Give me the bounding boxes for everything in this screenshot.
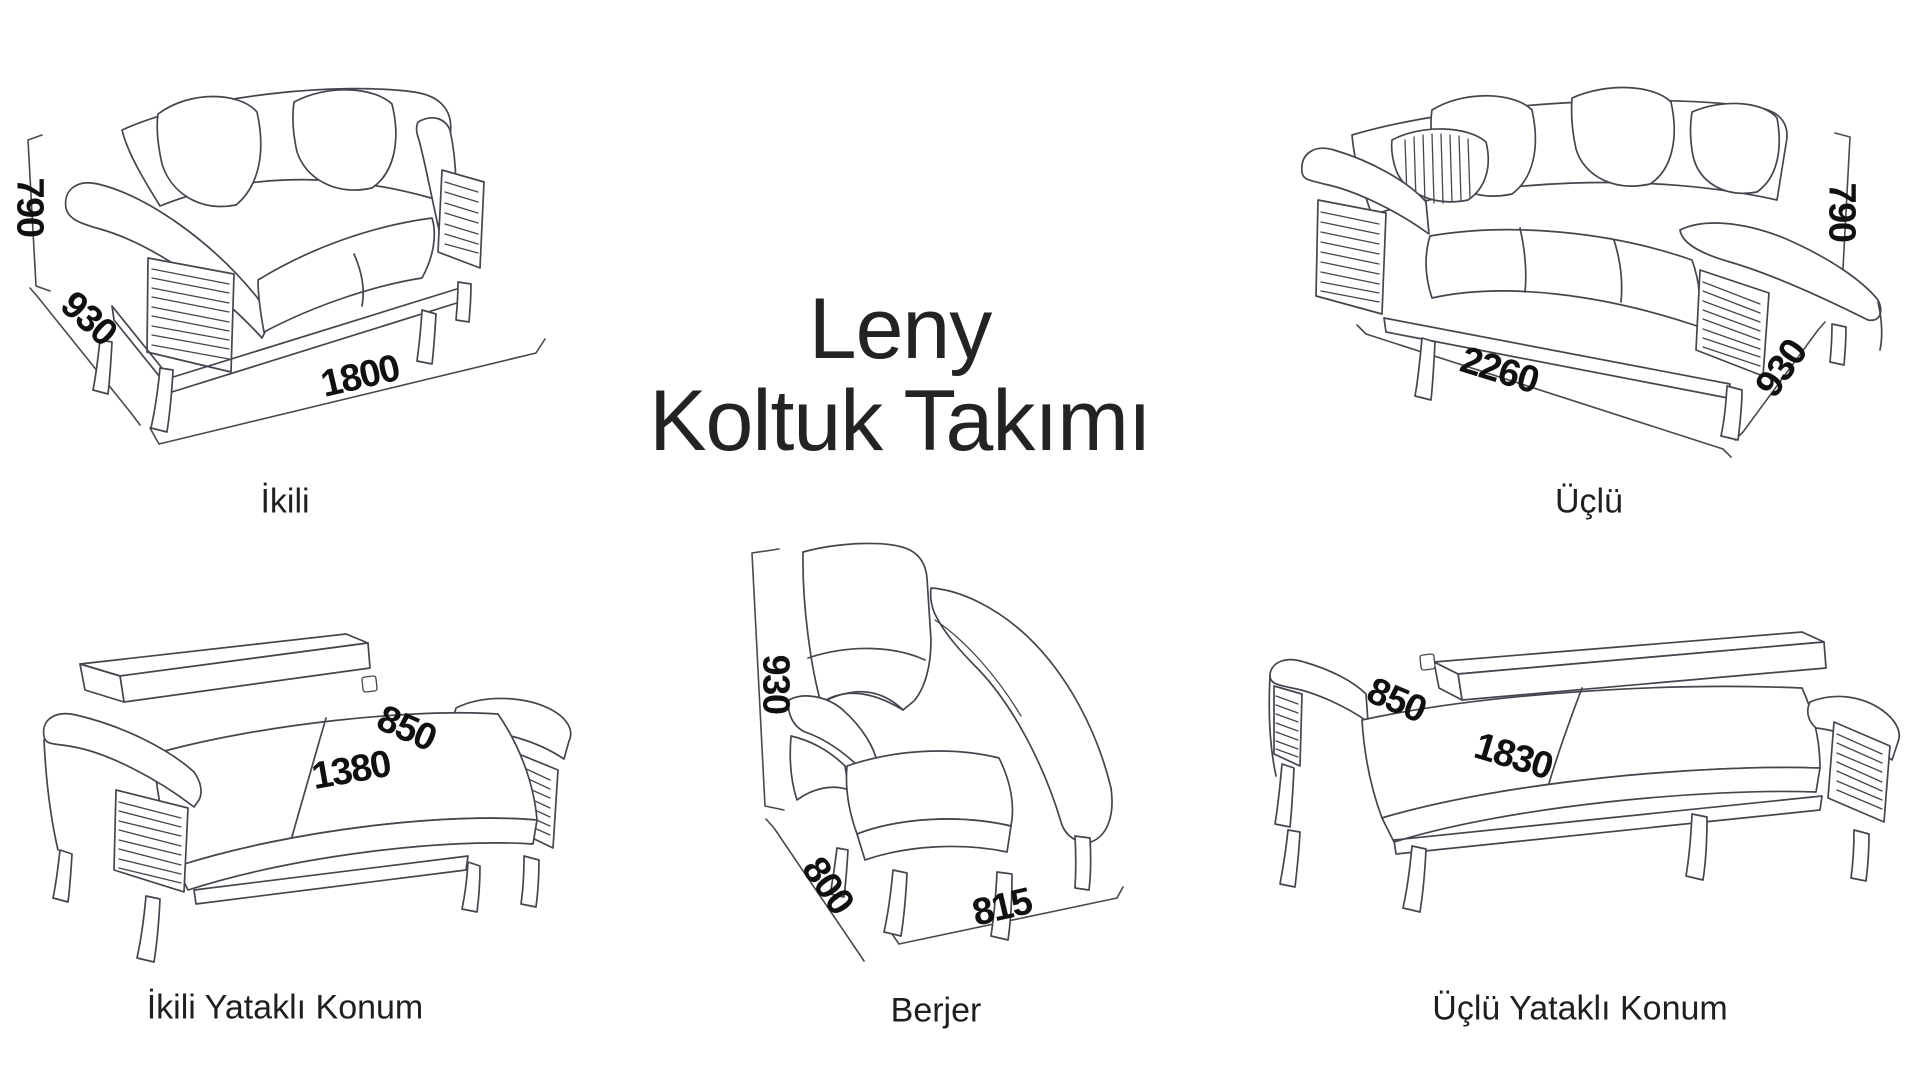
uclu-seat-cushions	[1426, 228, 1700, 326]
berjer-label: Berjer	[891, 992, 982, 1031]
title-line-1: Leny	[649, 283, 1151, 375]
uclu-yatakli-right-arm	[1808, 696, 1899, 881]
leny-dimension-sheet: Leny Koltuk Takımı İkili Üçlü İkili Yata…	[0, 0, 1920, 1080]
uclu-yatakli-drawing	[1262, 618, 1907, 968]
ikili-yatakli-bed-surface	[154, 713, 537, 890]
uclu-yatakli-left-arm	[1269, 660, 1368, 887]
ikili-yatakli-drawing	[28, 628, 573, 973]
ikili-drawing	[22, 78, 577, 438]
berjer-height-dim: 930	[754, 655, 797, 714]
uclu-height-dim: 790	[1820, 183, 1863, 242]
ikili-yatakli-headrest-panel	[80, 634, 377, 702]
ikili-yatakli-label: İkili Yataklı Konum	[147, 989, 424, 1028]
berjer-drawing	[745, 540, 1125, 968]
uclu-drawing	[1272, 80, 1912, 450]
berjer-backrest	[803, 543, 931, 710]
ikili-seat-cushions	[258, 218, 434, 332]
uclu-yatakli-label: Üçlü Yataklı Konum	[1432, 990, 1727, 1029]
ikili-height-dim: 790	[8, 178, 51, 237]
uclu-yatakli-bed-surface	[1362, 686, 1820, 842]
berjer-seat-cushion	[846, 751, 1012, 860]
title-line-2: Koltuk Takımı	[649, 375, 1151, 467]
ikili-label: İkili	[260, 483, 309, 522]
page-title: Leny Koltuk Takımı	[649, 283, 1151, 467]
uclu-label: Üçlü	[1555, 483, 1623, 522]
uclu-back-pillows	[1392, 87, 1780, 203]
